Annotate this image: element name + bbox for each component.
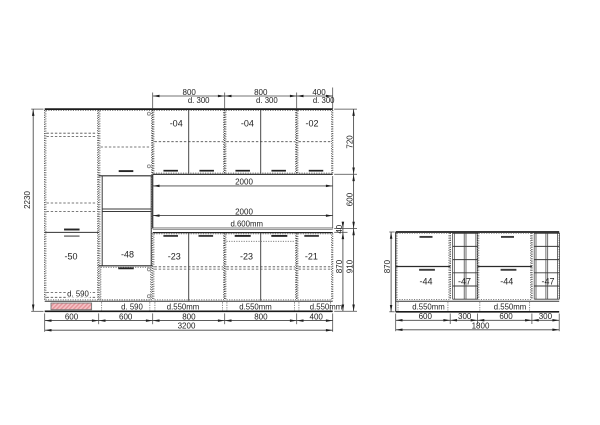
svg-text:-47: -47 — [458, 277, 471, 287]
svg-text:870: 870 — [383, 259, 392, 273]
svg-text:1800: 1800 — [472, 321, 490, 330]
svg-text:d.550mm: d.550mm — [167, 303, 200, 312]
svg-text:d.550mm: d.550mm — [310, 303, 343, 312]
svg-text:600: 600 — [499, 312, 513, 321]
svg-text:d.550mm: d.550mm — [412, 303, 445, 312]
svg-text:2230: 2230 — [23, 191, 32, 209]
svg-text:d. 590: d. 590 — [121, 303, 143, 312]
svg-text:-48: -48 — [121, 249, 134, 259]
svg-text:300: 300 — [539, 312, 553, 321]
svg-text:2000: 2000 — [235, 208, 253, 217]
svg-text:600: 600 — [346, 192, 355, 206]
svg-text:3200: 3200 — [178, 322, 196, 331]
svg-text:-23: -23 — [168, 252, 181, 262]
svg-text:-04: -04 — [241, 118, 254, 128]
svg-text:-50: -50 — [64, 252, 77, 262]
svg-text:870: 870 — [335, 259, 344, 273]
svg-text:600: 600 — [419, 312, 433, 321]
svg-text:d. 590: d. 590 — [67, 289, 89, 298]
svg-text:-44: -44 — [419, 277, 432, 287]
svg-text:800: 800 — [182, 312, 196, 321]
svg-text:910: 910 — [346, 259, 355, 273]
svg-text:d. 300: d. 300 — [188, 96, 210, 105]
svg-text:-21: -21 — [305, 252, 318, 262]
svg-text:720: 720 — [346, 135, 355, 149]
svg-text:300: 300 — [458, 312, 472, 321]
svg-text:d.550mm: d.550mm — [239, 303, 272, 312]
svg-text:600: 600 — [119, 312, 133, 321]
svg-text:2000: 2000 — [235, 178, 253, 187]
svg-text:800: 800 — [254, 312, 268, 321]
svg-text:400: 400 — [310, 312, 324, 321]
svg-text:d.550mm: d.550mm — [494, 303, 527, 312]
svg-text:40: 40 — [335, 224, 344, 233]
svg-text:d.600mm: d.600mm — [230, 219, 263, 228]
svg-text:600: 600 — [65, 312, 79, 321]
svg-text:-44: -44 — [500, 277, 513, 287]
svg-text:-23: -23 — [240, 252, 253, 262]
svg-text:-04: -04 — [170, 118, 183, 128]
svg-text:-02: -02 — [305, 118, 318, 128]
svg-text:-47: -47 — [541, 277, 554, 287]
svg-text:d. 300: d. 300 — [256, 96, 278, 105]
svg-text:d. 300: d. 300 — [313, 96, 335, 105]
